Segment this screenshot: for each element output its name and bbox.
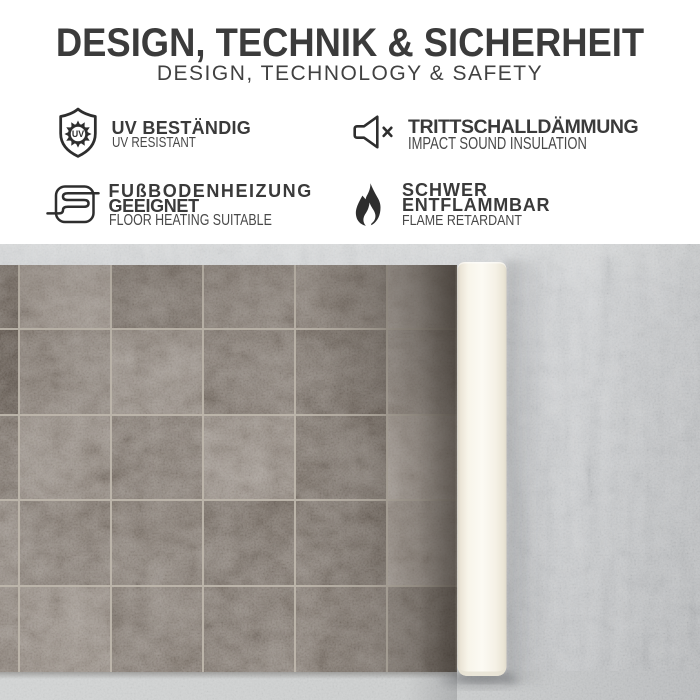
svg-text:UV: UV: [71, 129, 83, 139]
